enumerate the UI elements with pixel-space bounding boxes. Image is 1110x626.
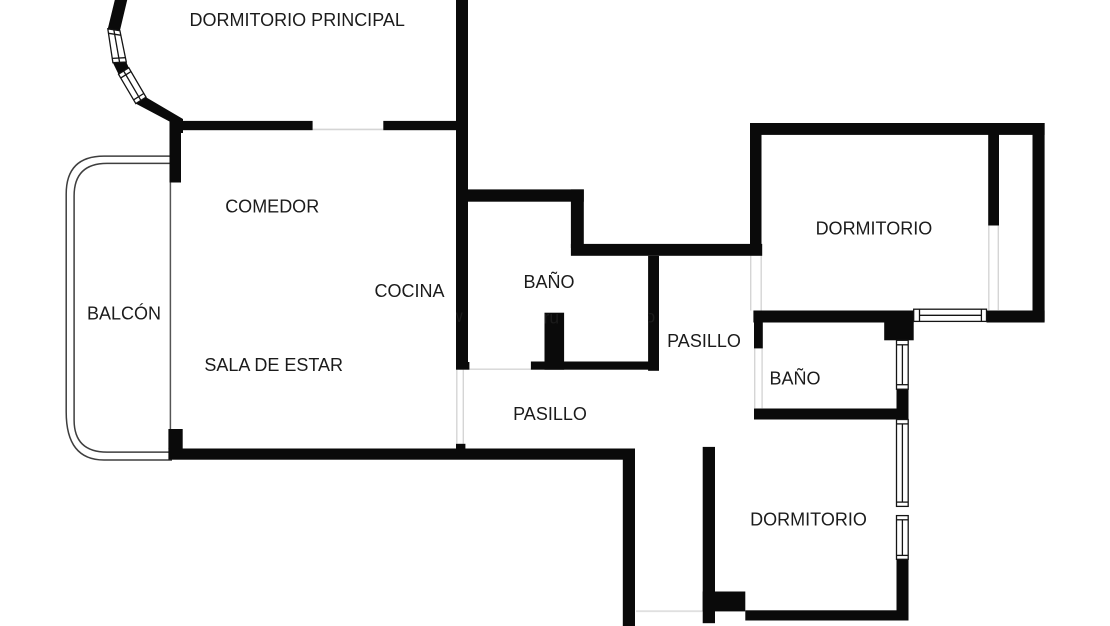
svg-text:DORMITORIO: DORMITORIO [816,219,933,239]
svg-text:COCINA: COCINA [374,281,444,301]
svg-text:BALCÓN: BALCÓN [87,303,161,324]
svg-text:PASILLO: PASILLO [667,331,741,351]
svg-text:COMEDOR: COMEDOR [225,197,319,217]
svg-text:DORMITORIO PRINCIPAL: DORMITORIO PRINCIPAL [190,10,405,30]
svg-text:SALA DE ESTAR: SALA DE ESTAR [204,355,343,375]
svg-text:DORMITORIO: DORMITORIO [750,510,867,530]
svg-text:PASILLO: PASILLO [513,404,587,424]
svg-text:BAÑO: BAÑO [769,368,820,389]
svg-text:BAÑO: BAÑO [523,271,574,292]
